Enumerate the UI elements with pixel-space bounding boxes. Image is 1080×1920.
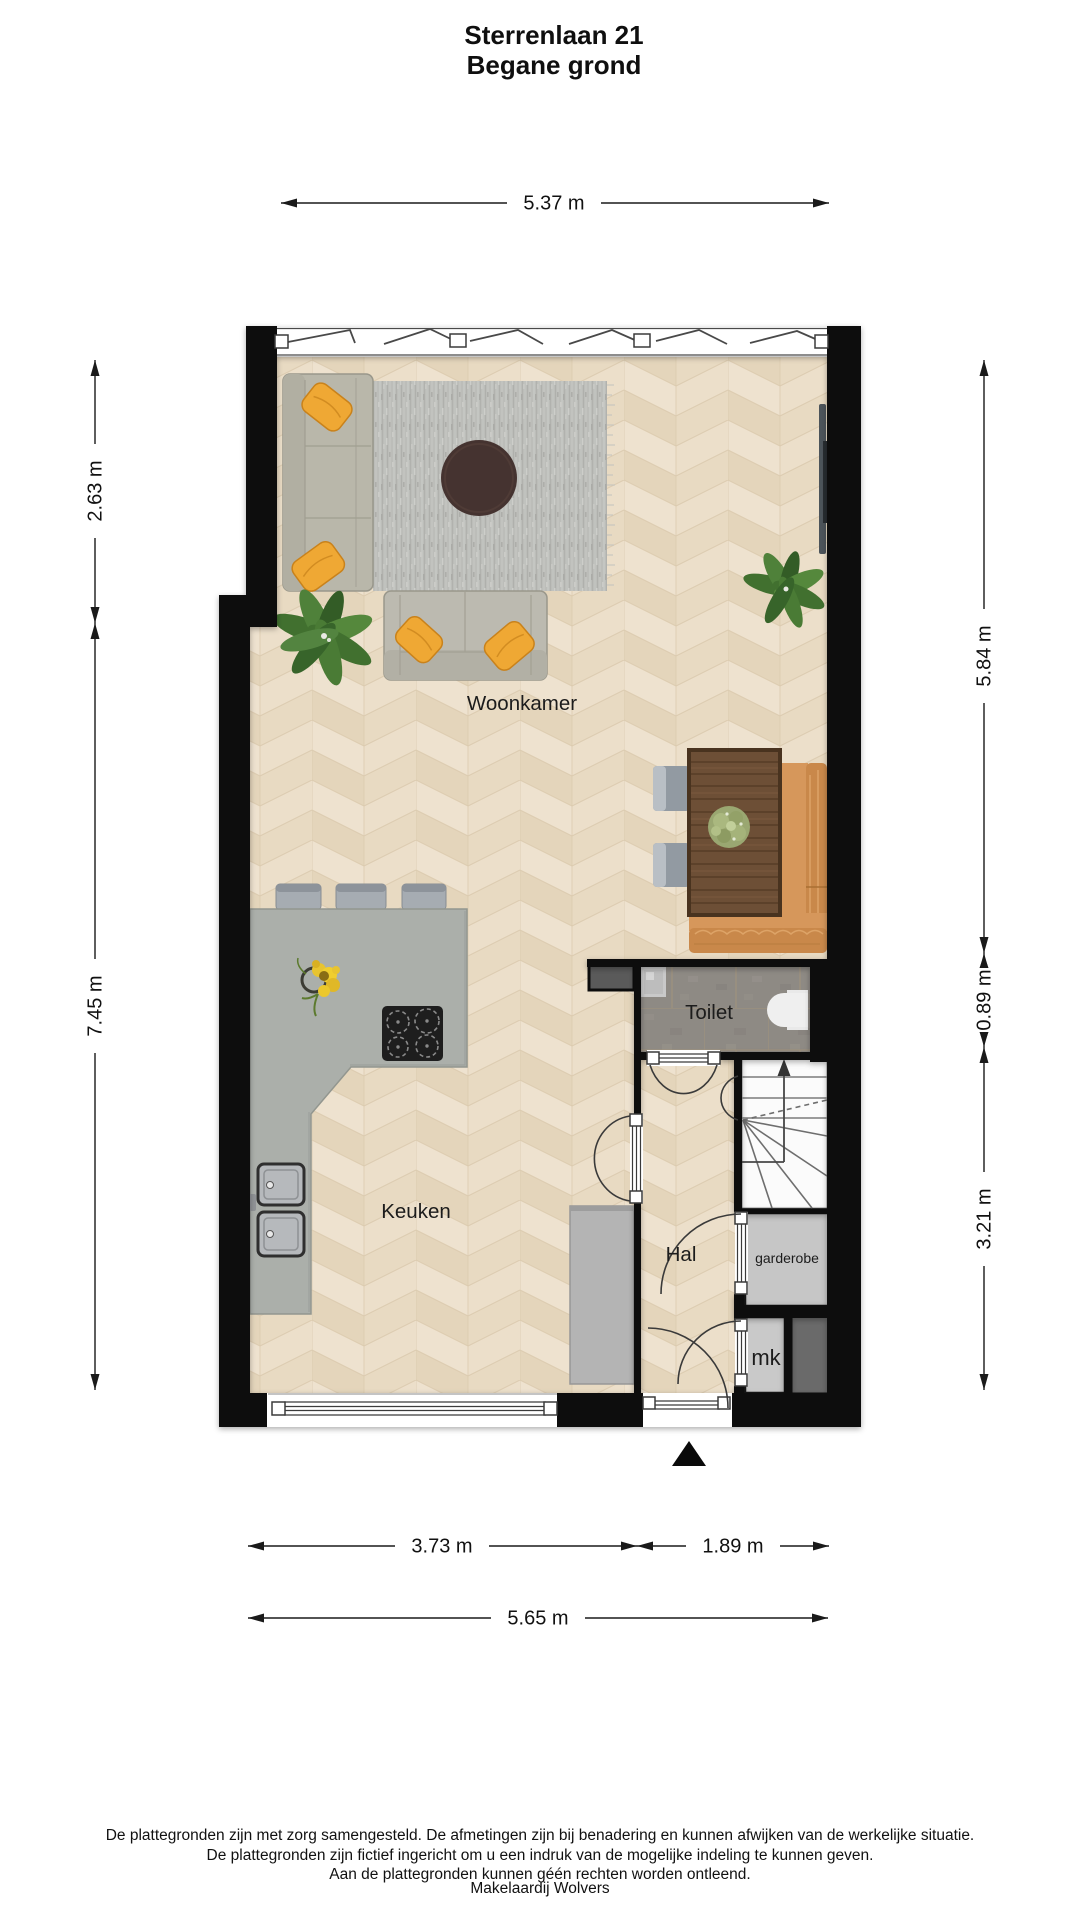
svg-text:garderobe: garderobe [755,1250,819,1266]
svg-text:5.37 m: 5.37 m [523,193,584,215]
svg-text:Sterrenlaan 21: Sterrenlaan 21 [464,20,643,50]
svg-text:Hal: Hal [666,1243,697,1266]
svg-text:Begane grond: Begane grond [467,50,642,80]
svg-text:1.89 m: 1.89 m [702,1536,763,1558]
svg-text:2.63 m: 2.63 m [85,460,107,521]
svg-text:0.89 m: 0.89 m [974,969,996,1030]
svg-text:Keuken: Keuken [381,1200,451,1223]
svg-text:7.45 m: 7.45 m [85,975,107,1036]
svg-text:mk: mk [751,1345,781,1370]
svg-text:5.84 m: 5.84 m [974,625,996,686]
svg-text:3.21 m: 3.21 m [974,1188,996,1249]
svg-text:Woonkamer: Woonkamer [467,692,577,715]
svg-text:De plattegronden zijn met zorg: De plattegronden zijn met zorg samengest… [106,1827,975,1844]
svg-text:Makelaardij Wolvers: Makelaardij Wolvers [470,1880,610,1897]
svg-text:5.65 m: 5.65 m [507,1608,568,1630]
svg-text:De plattegronden zijn fictief: De plattegronden zijn fictief ingericht … [207,1847,874,1864]
svg-text:Toilet: Toilet [685,1001,733,1024]
svg-text:3.73 m: 3.73 m [411,1536,472,1558]
